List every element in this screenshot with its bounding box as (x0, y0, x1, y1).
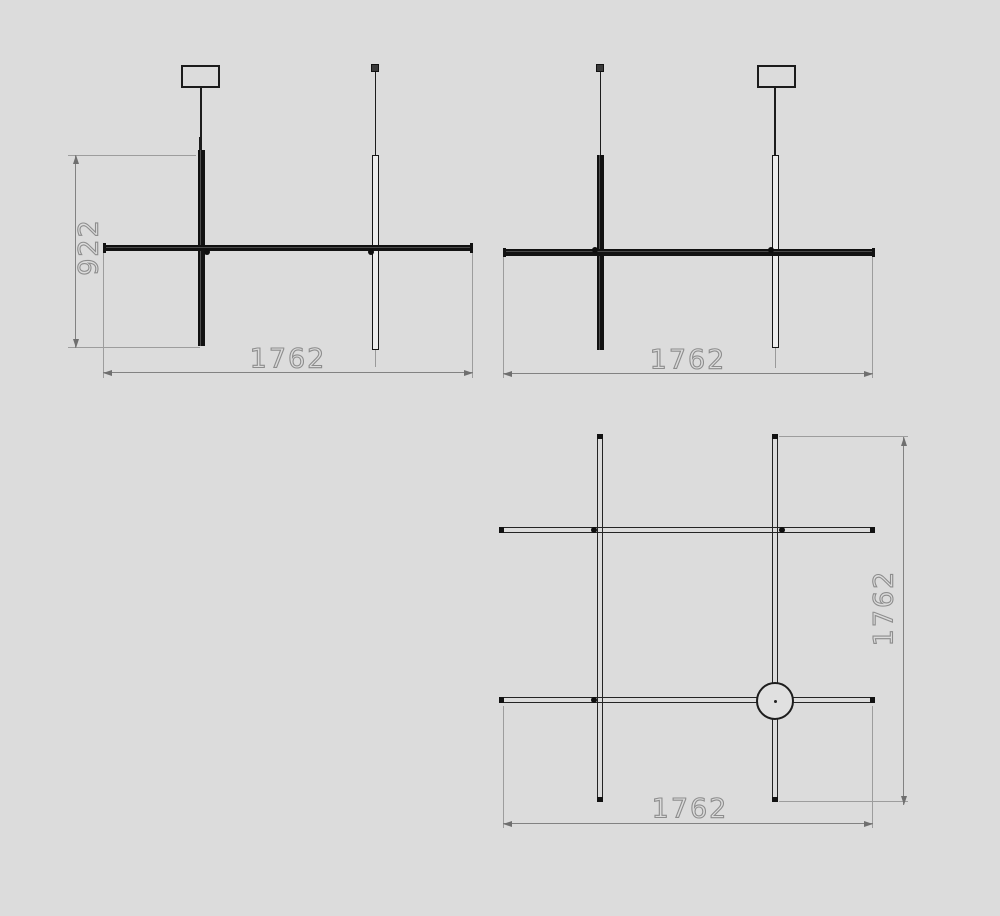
tube-tail (375, 350, 376, 367)
suspension-wire (375, 72, 377, 155)
extension-line (68, 155, 196, 156)
tube-end-cap (870, 697, 875, 703)
plan-vertical-tube (597, 435, 603, 802)
dimension-arrow (901, 796, 907, 805)
dimension-label-1762: 1762 (652, 794, 729, 825)
canopy-stem (774, 87, 777, 155)
dimension-arrow (901, 437, 907, 446)
dimension-label-1762: 1762 (250, 344, 327, 375)
joint-knob (368, 249, 374, 255)
canopy-center-dot (774, 700, 777, 703)
dimension-line-1762 (903, 437, 904, 805)
ceiling-connector (371, 64, 379, 72)
dimension-arrow (503, 371, 512, 377)
dimension-arrow (73, 155, 79, 164)
extension-line (503, 257, 504, 378)
bar-end-cap (470, 243, 473, 253)
dimension-arrow (503, 821, 512, 827)
suspension-wire (600, 72, 602, 155)
extension-line (68, 347, 200, 348)
extension-line (503, 706, 504, 828)
dimension-arrow (73, 339, 79, 348)
tube-end-cap (870, 527, 875, 533)
joint-knob (779, 527, 785, 533)
tube-end-cap (499, 697, 504, 703)
dimension-arrow (864, 821, 873, 827)
joint-knob (591, 527, 597, 533)
tube-tail (775, 348, 776, 368)
dimension-label-1762: 1762 (650, 345, 727, 376)
extension-line (779, 436, 908, 437)
tube-end-cap (597, 797, 603, 802)
joint-knob (768, 247, 774, 253)
extension-line (872, 257, 873, 378)
plan-horizontal-tube (500, 527, 875, 533)
joint-knob (592, 247, 598, 253)
dimension-label-1762: 1762 (869, 570, 900, 647)
extension-line (779, 801, 908, 802)
plan-horizontal-tube (500, 697, 875, 703)
tube-end-cap (597, 434, 603, 439)
plan-vertical-tube (772, 435, 778, 802)
extension-line (872, 706, 873, 828)
ceiling-canopy (757, 65, 796, 88)
tube-end-cap (772, 434, 778, 439)
dimension-arrow (464, 370, 473, 376)
joint-knob (204, 249, 210, 255)
bar-end-cap (872, 248, 875, 258)
bar-end-cap (103, 243, 106, 253)
ceiling-connector (596, 64, 604, 72)
horizontal-bar (503, 249, 875, 256)
dimension-arrow (103, 370, 112, 376)
horizontal-bar (103, 245, 473, 252)
bar-end-cap (503, 248, 506, 258)
tube-end-cap (499, 527, 504, 533)
joint-knob (591, 697, 597, 703)
tube-end-cap (772, 797, 778, 802)
dimension-arrow (864, 371, 873, 377)
dimension-label-922: 922 (74, 218, 105, 276)
canopy-stem (200, 87, 202, 137)
extension-line (472, 253, 473, 378)
ceiling-canopy (181, 65, 220, 88)
dimension-drawing: 922 1762 1762 (0, 0, 1000, 916)
